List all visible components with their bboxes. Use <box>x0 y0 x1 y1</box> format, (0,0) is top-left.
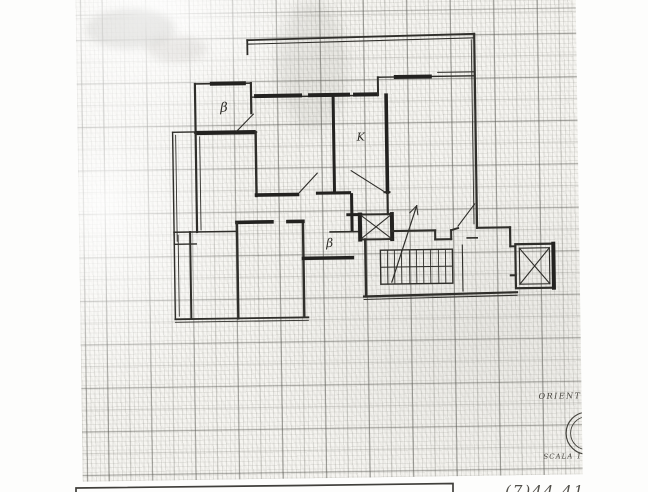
scale-label: SCALA 1: <box>543 452 582 461</box>
orientation-label: ORIENT <box>538 391 581 401</box>
door-swing <box>458 204 475 226</box>
balcony-upper-left <box>173 132 197 244</box>
compass-icon <box>566 412 583 455</box>
right-section-walls <box>462 227 516 291</box>
balcony-lower-left <box>174 222 308 322</box>
room-label-beta-upper: β <box>219 100 228 115</box>
room-label-beta-lower: β <box>325 236 333 250</box>
sheet-content: β K β ORIENT SCALA 1: <box>75 0 582 482</box>
door-swing <box>236 114 253 131</box>
interior-walls <box>235 95 391 317</box>
exterior-walls <box>251 72 474 97</box>
left-wall <box>196 133 201 232</box>
room-label-kitchen: K <box>356 130 366 143</box>
door-swing <box>299 170 383 192</box>
handwritten-note: (7)44 41 <box>505 482 585 492</box>
floor-plan-drawing: β K β <box>75 0 582 482</box>
graph-paper-sheet: β K β ORIENT SCALA 1: <box>75 0 582 482</box>
scanned-page: β K β ORIENT SCALA 1: (7)44 41 <box>0 0 648 492</box>
stair-hall-walls <box>363 227 517 299</box>
ventilation-shaft <box>360 214 392 239</box>
elevator-shaft <box>515 244 554 289</box>
staircase <box>380 249 452 284</box>
